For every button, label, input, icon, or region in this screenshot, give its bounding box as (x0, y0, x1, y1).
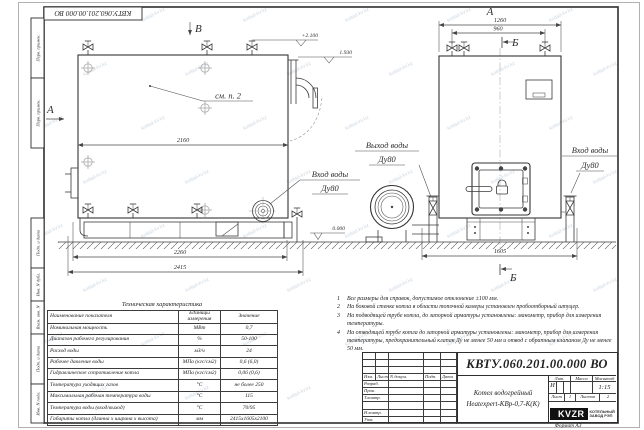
watermark-text: kotlad-kv.kz (140, 114, 166, 131)
svg-text:0.000: 0.000 (332, 226, 345, 232)
col-docnum: N докум. (389, 374, 424, 381)
tech-row: Температура воды (вход/выход)°С70/95 (48, 403, 278, 414)
note-text: На отводящей трубе котла до запорной арм… (347, 330, 611, 353)
tech-cell: МПа (кгс/см2) (179, 357, 221, 368)
dim-960: 960 (493, 26, 503, 33)
tech-table-title: Техническая характеристика (47, 301, 277, 308)
tech-row: Максимальная рабочая температура воды°С1… (48, 391, 278, 402)
tech-cell: Габариты котла (длинна х ширина х высота… (48, 414, 179, 425)
watermark-text: kotlad-kv.kz (446, 6, 472, 23)
tech-table: Наименование показателя Единицы измерени… (47, 310, 278, 426)
tech-cell: не более 250 (221, 380, 278, 391)
note-item: 4На отводящей трубе котла до запорной ар… (336, 329, 617, 354)
watermark-text: kotlad-kv.kz (286, 168, 312, 185)
strip-label: Подп. и дата (36, 229, 41, 257)
sheet-label: Лист (549, 394, 565, 402)
note-item: 3На подводящей трубе котла, до запорной … (336, 312, 617, 329)
product-name-line1: Котел водогрейный (474, 388, 533, 399)
product-name-line2: Heatexpert-КВр-0,7-К(К) (466, 399, 539, 410)
tech-cell: Рабочее давление воды (48, 357, 179, 368)
watermark-text: kotlad-kv.kz (548, 6, 574, 23)
strip-label: Взам. инв. N (36, 305, 41, 330)
tech-th: Единицы измерения (179, 311, 221, 324)
watermark-text: kotlad-kv.kz (82, 60, 108, 77)
watermark-text: kotlad-kv.kz (140, 222, 166, 239)
dim-1260: 1260 (494, 17, 507, 24)
outlet-pipe (427, 196, 440, 242)
dim-2260: 2260 (174, 249, 187, 256)
tech-row: Гидравлическое сопротивление котлаМПа (к… (48, 369, 278, 380)
elevation-mark-outlet: 1.930 (298, 50, 352, 63)
strip-label: Перв. примен. (36, 99, 41, 127)
tech-cell: Гидравлическое сопротивление котла (48, 369, 179, 380)
watermark-text: kotlad-kv.kz (388, 60, 414, 77)
svg-text:Б: Б (511, 37, 519, 49)
tech-cell: мм (179, 414, 221, 425)
watermark-text: kotlad-kv.kz (184, 168, 210, 185)
svg-text:Ду80: Ду80 (580, 161, 599, 170)
tech-cell: Температура уходящих газов (48, 380, 179, 391)
title-block: Изм. Лист N докум. Подп. Дата Разраб. Пр… (362, 352, 618, 423)
strip-label: Перв. примен. (36, 34, 41, 62)
note-number: 3 (337, 312, 340, 320)
sheets-label: Листов (576, 394, 600, 402)
sig-razrab: Разраб. (363, 381, 389, 388)
sig-utv: Утв. (363, 417, 389, 424)
strip-label: Инв. N дубл. (36, 273, 41, 298)
section-mark-top: Б (502, 37, 519, 49)
tech-row: Температура уходящих газов°Сне более 250 (48, 380, 278, 391)
outlet-label: Выход воды Ду80 (355, 141, 431, 197)
tech-row: Габариты котла (длинна х ширина х высота… (48, 414, 278, 425)
view-arrow-A: А (46, 104, 54, 116)
watermark-text: kotlad-kv.kz (490, 60, 516, 77)
product-name: Котел водогрейный Heatexpert-КВр-0,7-К(К… (457, 376, 549, 422)
watermark-text: kotlad-kv.kz (592, 276, 618, 293)
svg-text:Ду80: Ду80 (377, 155, 396, 164)
company-name: КОТЕЛЬНЫЙЗАВОД РЭП (590, 410, 615, 419)
watermark-text: kotlad-kv.kz (82, 276, 108, 293)
note-number: 1 (337, 295, 340, 303)
inlet-pipe (561, 196, 577, 242)
watermark-text: kotlad-kv.kz (388, 168, 414, 185)
view-arrow-B: В (195, 23, 202, 35)
watermark-text: kotlad-kv.kz (140, 6, 166, 23)
inlet-flange-icon (249, 197, 277, 225)
watermark-text: kotlad-kv.kz (242, 6, 268, 23)
furnace-door (466, 163, 530, 215)
watermark-text: kotlad-kv.kz (184, 60, 210, 77)
tech-row: Расход водым3/ч24 (48, 346, 278, 357)
sig-nkontr: Н.контр. (363, 410, 389, 417)
tech-th: Наименование показателя (48, 311, 179, 324)
notes-block: 1Все размеры для справок, допустимое отк… (336, 295, 617, 354)
col-list: Лист (376, 374, 389, 381)
watermark-text: kotlad-kv.kz (548, 222, 574, 239)
watermark-text: kotlad-kv.kz (344, 6, 370, 23)
tech-cell: 0,7 (221, 323, 278, 334)
dim-1605: 1605 (494, 248, 506, 255)
tech-row: Рабочее давление водыМПа (кгс/см2)0,6 (6… (48, 357, 278, 368)
tech-cell: °С (179, 380, 221, 391)
tech-cell: МПа (кгс/см2) (179, 369, 221, 380)
mass-value (571, 382, 593, 394)
col-podp: Подп. (424, 374, 441, 381)
ground-line (58, 242, 616, 249)
svg-text:+2.100: +2.100 (302, 33, 319, 39)
tech-cell: Максимальная рабочая температура воды (48, 391, 179, 402)
tech-cell: м3/ч (179, 346, 221, 357)
sig-empty (363, 402, 389, 409)
elevation-mark-top: +2.100 (252, 33, 318, 46)
tech-cell: 70/95 (221, 403, 278, 414)
svg-text:1.930: 1.930 (339, 50, 352, 56)
note-item: 1Все размеры для справок, допустимое отк… (336, 295, 617, 303)
dim-2160: 2160 (177, 137, 190, 144)
watermark-text: kotlad-kv.kz (286, 60, 312, 77)
top-stamp-doc-number: КВТУ.060.201.00.000 ВО (54, 9, 133, 18)
signature-header-row: Изм. Лист N докум. Подп. Дата (363, 374, 457, 381)
blower-fan-icon (366, 186, 439, 243)
tech-table-header: Наименование показателя Единицы измерени… (48, 311, 278, 324)
note-text: Все размеры для справок, допустимое откл… (347, 296, 498, 302)
format-label: Формат А3 (520, 423, 616, 429)
lit-value: И (549, 382, 557, 394)
note-text: На боковой стенке котла в области топочн… (347, 304, 580, 310)
tech-cell: 115 (221, 391, 278, 402)
tech-cell: % (179, 334, 221, 345)
watermark-text: kotlad-kv.kz (388, 276, 414, 293)
kvzr-logo: KVZR (550, 408, 588, 420)
svg-text:Вход воды: Вход воды (572, 146, 609, 155)
title-block-right: Лит. Масса Масштаб И 1:15 Лист 1 Листов … (549, 376, 616, 422)
see-note-label: см. п. 2 (215, 92, 241, 101)
title-block-doc-number: КВТУ.060.201.00.000 ВО (457, 353, 616, 376)
tech-cell: Диапазон рабочего регулирования (48, 334, 179, 345)
tech-cell: 50-100 (221, 334, 278, 345)
inlet-side-label: Вход воды Ду80 (270, 170, 360, 204)
dim-2415: 2415 (174, 264, 186, 271)
strip-label: Подп. и дата (36, 345, 41, 373)
col-izm: Изм. (363, 374, 376, 381)
drawing-sheet: kotlad-kv.kzkotlad-kv.kzkotlad-kv.kzkotl… (0, 0, 644, 430)
note-number: 4 (337, 329, 340, 337)
inlet-front-label: Вход воды Ду80 (562, 146, 617, 193)
watermark-text: kotlad-kv.kz (592, 60, 618, 77)
watermark-text: kotlad-kv.kz (286, 276, 312, 293)
tech-cell: 24 (221, 346, 278, 357)
col-data: Дата (441, 374, 457, 381)
padlock-icon (497, 180, 508, 194)
watermark-text: kotlad-kv.kz (490, 168, 516, 185)
svg-text:Вход воды: Вход воды (312, 170, 349, 179)
svg-text:Б: Б (509, 272, 517, 284)
note-text: На подводящей трубе котла, до запорной а… (347, 313, 601, 327)
sig-prov: Пров. (363, 388, 389, 395)
company-logo-area: KVZR КОТЕЛЬНЫЙЗАВОД РЭП (550, 408, 615, 421)
tech-cell: МВт (179, 323, 221, 334)
sig-tkontr: Т.контр. (363, 395, 389, 402)
tech-cell: Номинальная мощность (48, 323, 179, 334)
boiler-side-view: см. п. 2 2160 (46, 22, 360, 276)
watermark-text: kotlad-kv.kz (446, 222, 472, 239)
sheets-value: 2 (600, 394, 616, 402)
watermark-text: kotlad-kv.kz (242, 114, 268, 131)
svg-text:Выход воды: Выход воды (366, 141, 409, 150)
elevation-mark-ground: 0.000 (310, 226, 345, 240)
tech-th: Значение (221, 311, 278, 324)
note-item: 2На боковой стенке котла в области топоч… (336, 303, 617, 311)
tech-cell: 0,6 (6,0) (221, 357, 278, 368)
tech-cell: 2415х1605х2100 (221, 414, 278, 425)
title-block-signatures: Изм. Лист N докум. Подп. Дата Разраб. Пр… (363, 353, 457, 422)
svg-text:Ду80: Ду80 (320, 184, 339, 193)
tech-cell: Расход воды (48, 346, 179, 357)
tech-row: Номинальная мощностьМВт0,7 (48, 323, 278, 334)
view-label-A: А (486, 6, 494, 18)
tech-cell: °С (179, 403, 221, 414)
watermark-text: kotlad-kv.kz (286, 384, 312, 401)
watermark-text: kotlad-kv.kz (242, 222, 268, 239)
tech-row: Диапазон рабочего регулирования%50-100 (48, 334, 278, 345)
watermark-text: kotlad-kv.kz (344, 114, 370, 131)
strip-label: Инв. N подл. (36, 391, 41, 416)
scale-value: 1:15 (593, 382, 616, 394)
watermark-text: kotlad-kv.kz (184, 276, 210, 293)
watermark-text: kotlad-kv.kz (446, 114, 472, 131)
note-number: 2 (337, 303, 340, 311)
tech-cell: 0,06 (0,6) (221, 369, 278, 380)
tech-cell: Температура воды (вход/выход) (48, 403, 179, 414)
tech-cell: °С (179, 391, 221, 402)
watermark-text: kotlad-kv.kz (82, 168, 108, 185)
sheet-value: 1 (565, 394, 576, 402)
